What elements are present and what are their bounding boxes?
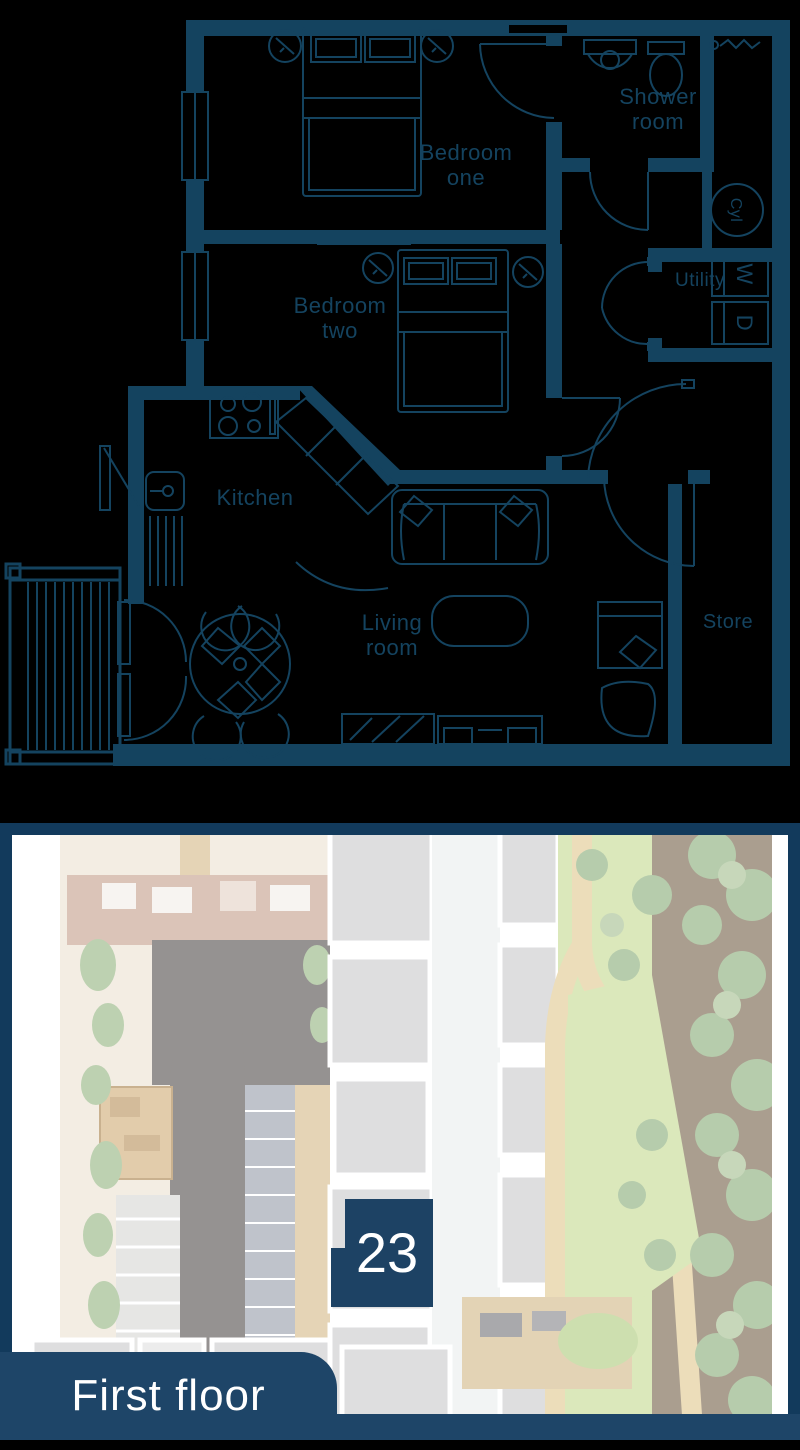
svg-text:Utility: Utility — [675, 270, 725, 291]
bed-two-icon — [398, 250, 508, 412]
site-plan-render — [12, 835, 788, 1415]
dining-table-icon — [190, 606, 290, 760]
armchair-icon — [598, 602, 662, 668]
site-plan-photo — [12, 835, 788, 1415]
kitchen-counter — [276, 398, 398, 590]
floor-tab-label: First floor — [71, 1371, 265, 1421]
plot-23-marker: 23 — [331, 1199, 433, 1307]
svg-text:Kitchen: Kitchen — [217, 485, 294, 510]
svg-text:two: two — [322, 318, 358, 343]
room-label-bedroom-one: Bedroom one — [420, 140, 513, 190]
walls — [113, 20, 790, 766]
cylinder-label: Cyl — [727, 198, 744, 223]
floor-tab: First floor — [0, 1352, 337, 1440]
balcony — [6, 564, 120, 764]
shower-head-icon — [710, 40, 760, 49]
svg-text:Store: Store — [703, 611, 753, 633]
room-label-kitchen: Kitchen — [217, 485, 294, 510]
sink-icon — [146, 472, 184, 586]
tv-unit-icon — [438, 716, 542, 744]
brochure-page: Bedroom one Bedroom two Shower room Util… — [0, 0, 800, 1450]
washer-label: W — [732, 263, 757, 284]
svg-text:room: room — [366, 635, 418, 660]
sofa-icon — [392, 490, 548, 564]
room-label-bedroom-two: Bedroom two — [294, 293, 387, 343]
plot-number: 23 — [346, 1225, 418, 1281]
svg-text:room: room — [632, 109, 684, 134]
coffee-table-icon — [432, 596, 528, 646]
svg-text:Bedroom: Bedroom — [294, 293, 387, 318]
bed-one-icon — [303, 28, 421, 196]
basin-icon — [584, 40, 636, 69]
svg-text:Living: Living — [362, 610, 422, 635]
room-label-store: Store — [703, 611, 753, 633]
floorplan-svg: Bedroom one Bedroom two Shower room Util… — [0, 0, 800, 800]
svg-text:one: one — [447, 165, 485, 190]
room-label-shower-room: Shower room — [619, 84, 697, 134]
room-label-living-room: Living room — [362, 610, 422, 660]
room-label-utility: Utility — [675, 270, 725, 291]
site-plan — [0, 823, 800, 1440]
windows — [100, 24, 568, 510]
corner-table-icon — [601, 682, 655, 737]
dryer-label: D — [732, 315, 757, 331]
radiator-hatch — [342, 714, 434, 744]
svg-text:Shower: Shower — [619, 84, 697, 109]
svg-text:Bedroom: Bedroom — [420, 140, 513, 165]
